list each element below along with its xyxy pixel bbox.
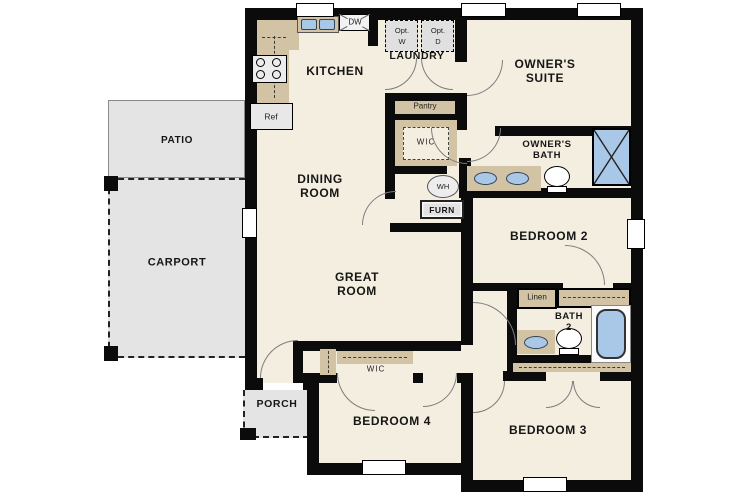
stove-burner <box>272 58 281 67</box>
owners-suite-label: OWNER'S SUITE <box>514 57 575 85</box>
optional-dryer-label2: D <box>435 38 440 46</box>
wic-shelf-dash <box>343 357 407 358</box>
porch-post <box>240 428 256 440</box>
vanity-sink <box>474 172 497 185</box>
wall-front-a <box>245 378 263 390</box>
bath2-line1: BATH <box>555 311 583 322</box>
optional-dryer-label: Opt. <box>431 27 445 35</box>
great-line2: ROOM <box>335 284 379 298</box>
bedroom4-label: BEDROOM 4 <box>353 414 431 428</box>
suite-line1: OWNER'S <box>514 57 575 71</box>
furnace-label: FURN <box>429 205 455 215</box>
wall-utility-west <box>385 93 395 199</box>
closet-shelf-dash <box>519 367 625 368</box>
dining-line1: DINING <box>297 172 343 186</box>
dishwasher-label: DW <box>347 19 362 28</box>
toilet <box>544 166 570 187</box>
wall-furnace-bottom <box>390 223 461 232</box>
suite-line2: SUITE <box>514 71 575 85</box>
water-heater-label: WH <box>437 183 450 191</box>
carport-post <box>104 176 118 191</box>
kitchen-window <box>296 3 334 17</box>
wall-stub-wic4 <box>413 373 423 383</box>
great-line1: GREAT <box>335 270 379 284</box>
vanity-sink <box>524 336 548 349</box>
wall-bedroom3-top-a <box>503 371 546 381</box>
wall-bedroom4-left <box>307 383 319 475</box>
coat-closet-dash <box>328 351 329 373</box>
obath-line1: OWNER'S <box>522 139 571 150</box>
owners-suite-window <box>577 3 621 17</box>
great-room-label: GREAT ROOM <box>335 270 379 298</box>
carport-post <box>104 346 118 361</box>
dining-room-label: DINING ROOM <box>297 172 343 200</box>
bedroom4-window <box>362 460 406 475</box>
wall-right <box>631 8 643 492</box>
carport-entry-door <box>242 208 257 238</box>
optional-washer: Opt. W <box>385 20 418 52</box>
carport-label: CARPORT <box>148 257 207 270</box>
refrigerator-label: Ref <box>264 112 277 121</box>
bedroom3-label: BEDROOM 3 <box>509 423 587 437</box>
bath2-line2: 2 <box>555 322 583 333</box>
optional-dryer: Opt. D <box>421 20 454 52</box>
bedroom2-window <box>627 219 645 249</box>
wall-suite-west-a <box>455 20 467 62</box>
wall-stub-bed4 <box>457 373 473 383</box>
bathtub <box>596 309 626 359</box>
linen-label: Linen <box>527 294 547 303</box>
dining-line2: ROOM <box>297 186 343 200</box>
obath-line2: BATH <box>522 150 571 161</box>
wall-pantry-bottom <box>385 113 467 120</box>
closet-shelf-dash <box>563 297 625 298</box>
sink-bowl <box>319 19 335 30</box>
kitchen-label: KITCHEN <box>306 64 364 78</box>
wall-bedroom3-top-b <box>600 371 631 381</box>
owners-suite-window <box>461 3 506 17</box>
sink-bowl <box>301 19 317 30</box>
wall-hall-closet-top <box>293 341 461 351</box>
bath2-label: BATH 2 <box>555 311 583 333</box>
shower-x-lines <box>594 130 629 184</box>
pantry-label: Pantry <box>413 103 436 112</box>
porch-label: PORCH <box>257 398 298 410</box>
counter-dash <box>262 37 286 38</box>
wall-bedroom2-west <box>461 198 473 345</box>
floor-plan: DW Ref Opt. W Opt. D Pantry WIC WH FURN … <box>0 0 750 500</box>
vanity-sink <box>506 172 529 185</box>
toilet-tank <box>559 348 579 355</box>
stove-burner <box>272 70 281 79</box>
optional-washer-label: Opt. <box>395 27 409 35</box>
toilet-tank <box>547 186 567 193</box>
owners-bath-label: OWNER'S BATH <box>522 139 571 161</box>
laundry-label: LAUNDRY <box>389 50 444 62</box>
bedroom2-label: BEDROOM 2 <box>510 229 588 243</box>
optional-washer-label2: W <box>398 38 405 46</box>
stove-burner <box>256 58 265 67</box>
wall-wic-bottom <box>385 166 447 174</box>
wall-pantry-top <box>385 93 467 101</box>
bedroom3-window <box>523 477 567 492</box>
patio-label: PATIO <box>161 135 193 147</box>
stove-burner <box>256 70 265 79</box>
